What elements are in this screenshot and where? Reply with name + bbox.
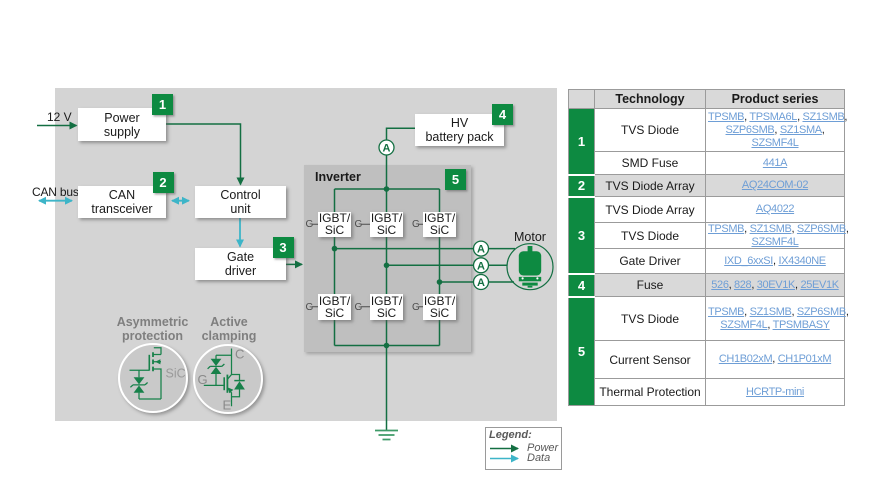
svg-text:A: A bbox=[383, 143, 391, 155]
svg-text:A: A bbox=[477, 260, 485, 272]
svg-text:A: A bbox=[477, 244, 485, 256]
svg-text:A: A bbox=[477, 277, 485, 289]
